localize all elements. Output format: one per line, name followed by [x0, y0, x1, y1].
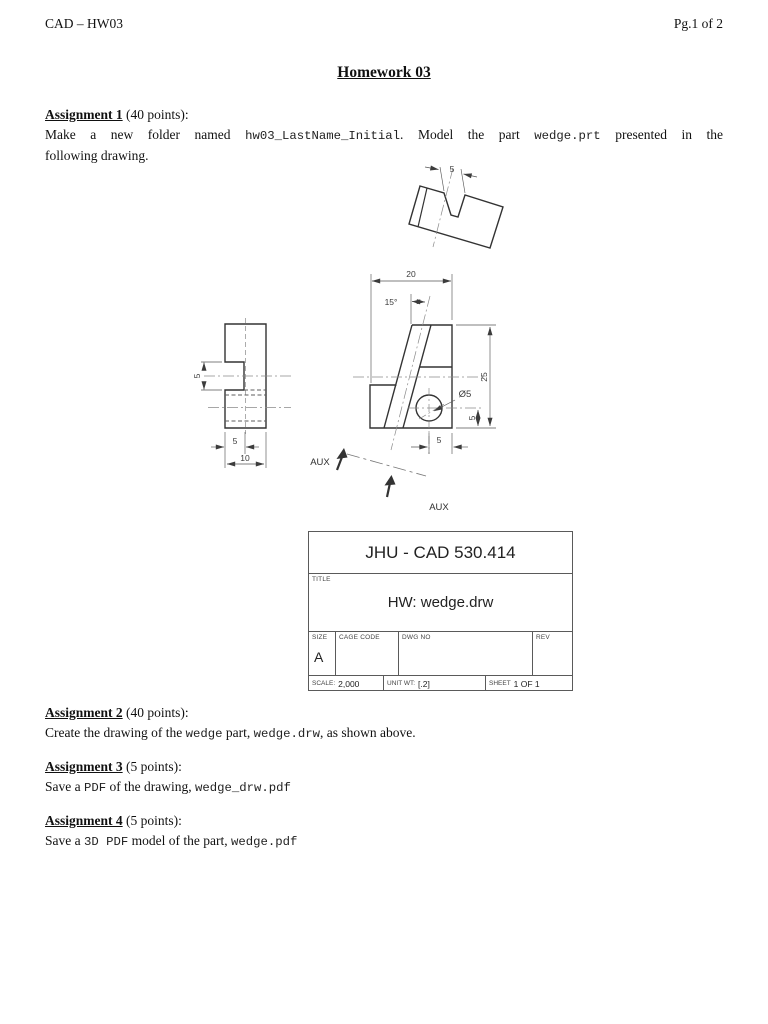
- assignment-1-body-line1: Make a new folder named hw03_LastName_In…: [45, 125, 723, 146]
- title-label: TITLE: [312, 576, 331, 583]
- scale-label: SCALE:: [312, 680, 335, 687]
- dwg-no-cell: DWG NO: [399, 632, 533, 675]
- dim-front-height: 25: [479, 372, 489, 382]
- aux-label-left: AUX: [310, 457, 330, 468]
- side-view-hidden-lines: [225, 390, 266, 421]
- scale-cell: SCALE: 2,000: [309, 676, 384, 691]
- hole-circle: [416, 395, 442, 421]
- header-course-code: CAD – HW03: [45, 16, 123, 32]
- assignment-1-body-line2: following drawing.: [45, 146, 723, 166]
- document-page: CAD – HW03 Pg.1 of 2 Homework 03 Assignm…: [0, 0, 768, 1024]
- size-label: SIZE: [312, 634, 327, 641]
- front-view: 20 15° 25 5 5 Ø5: [353, 269, 496, 454]
- code-folder-name: hw03_LastName_Initial: [245, 129, 400, 143]
- cage-code-label: CAGE CODE: [339, 634, 380, 641]
- aux-slot-centerline: [433, 168, 453, 247]
- scale-value: 2,000: [338, 679, 359, 689]
- header-page-number: Pg.1 of 2: [674, 16, 723, 32]
- rev-label: REV: [536, 634, 550, 641]
- code-part-name: wedge.prt: [534, 129, 600, 143]
- dim-side-depth: 10: [240, 453, 250, 463]
- title-block: JHU - CAD 530.414 TITLE HW: wedge.drw SI…: [308, 531, 573, 691]
- drawing-title: HW: wedge.drw: [309, 594, 572, 611]
- code-part: wedge: [186, 727, 223, 741]
- assignment-2: Assignment 2 (40 points): Create the dra…: [45, 703, 723, 744]
- assignment-4-heading: Assignment 4 (5 points):: [45, 811, 723, 831]
- code-pdf-file: wedge_drw.pdf: [195, 781, 291, 795]
- aux-arrow-left-shaft: [337, 457, 342, 470]
- front-view-outline: [370, 325, 452, 428]
- text-run: of the drawing,: [106, 779, 195, 794]
- aux-arrow-right-shaft: [387, 483, 390, 497]
- assignment-2-points: (40 points):: [123, 705, 189, 720]
- dwg-no-label: DWG NO: [402, 634, 431, 641]
- assignment-2-title: Assignment 2: [45, 705, 123, 720]
- sheet-label: SHEET: [489, 680, 511, 687]
- assignment-4-body: Save a 3D PDF model of the part, wedge.p…: [45, 831, 723, 852]
- front-view-dimension-lines: [371, 274, 496, 454]
- assignment-3-title: Assignment 3: [45, 759, 123, 774]
- code-drawing-file: wedge.drw: [254, 727, 320, 741]
- dim-side-notch-height: 5: [192, 373, 202, 378]
- dim-slot-angle: 15°: [385, 297, 398, 307]
- assignment-3: Assignment 3 (5 points): Save a PDF of t…: [45, 757, 723, 798]
- auxiliary-view: 5: [409, 164, 503, 248]
- side-view-dimension-lines: [201, 362, 266, 468]
- aux-viewing-plane: AUX AUX: [310, 448, 449, 513]
- assignment-4-title: Assignment 4: [45, 813, 123, 828]
- text-run: Create the drawing of the: [45, 725, 186, 740]
- size-value: A: [314, 649, 323, 665]
- size-cell: SIZE A: [309, 632, 336, 675]
- aux-arrow-left-head: [337, 448, 348, 459]
- front-view-centerlines: [353, 296, 484, 454]
- side-view-centerlines: [204, 318, 291, 434]
- sheet-value: 1 OF 1: [514, 679, 540, 689]
- text-run: presented in the: [601, 127, 723, 142]
- aux-arrow-right-head: [385, 475, 396, 486]
- sheet-cell: SHEET 1 OF 1: [486, 676, 572, 691]
- title-block-company: JHU - CAD 530.414: [309, 532, 572, 574]
- title-block-bottom-row: SCALE: 2,000 UNIT WT: [.2] SHEET 1 OF 1: [309, 676, 572, 691]
- assignment-3-heading: Assignment 3 (5 points):: [45, 757, 723, 777]
- title-block-fields-row: SIZE A CAGE CODE DWG NO REV: [309, 632, 572, 676]
- assignment-3-body: Save a PDF of the drawing, wedge_drw.pdf: [45, 777, 723, 798]
- assignment-2-heading: Assignment 2 (40 points):: [45, 703, 723, 723]
- dim-hole-from-right: 5: [437, 435, 442, 445]
- text-run: model of the part,: [128, 833, 231, 848]
- rev-cell: REV: [533, 632, 572, 675]
- code-model-pdf-file: wedge.pdf: [231, 835, 297, 849]
- assignment-2-body: Create the drawing of the wedge part, we…: [45, 723, 723, 744]
- dim-front-width: 20: [406, 269, 416, 279]
- code-pdf: PDF: [84, 781, 106, 795]
- side-view: 5 5 10: [192, 318, 291, 468]
- text-run: , as shown above.: [320, 725, 416, 740]
- assignment-1-title: Assignment 1: [45, 107, 123, 122]
- page-title-text: Homework 03: [337, 64, 430, 81]
- code-3d-pdf: 3D PDF: [84, 835, 128, 849]
- unit-wt-label: UNIT WT:: [387, 680, 415, 687]
- aux-dimension-lines: [425, 167, 477, 193]
- assignment-1: Assignment 1 (40 points): Make a new fol…: [45, 105, 723, 166]
- slot-centerline: [391, 296, 430, 450]
- page-title: Homework 03: [0, 64, 768, 82]
- title-block-title-row: TITLE HW: wedge.drw: [309, 574, 572, 632]
- text-run: . Model the part: [400, 127, 534, 142]
- assignment-1-heading: Assignment 1 (40 points):: [45, 105, 723, 125]
- dim-side-notch-depth: 5: [233, 436, 238, 446]
- dim-hole-from-bottom: 5: [467, 415, 477, 420]
- unit-wt-cell: UNIT WT: [.2]: [384, 676, 486, 691]
- assignment-4: Assignment 4 (5 points): Save a 3D PDF m…: [45, 811, 723, 852]
- assignment-3-points: (5 points):: [123, 759, 182, 774]
- assignment-4-points: (5 points):: [123, 813, 182, 828]
- cage-code-cell: CAGE CODE: [336, 632, 399, 675]
- text-run: Make a new folder named: [45, 127, 245, 142]
- viewing-plane-line: [347, 454, 426, 476]
- side-view-outline: [225, 324, 266, 428]
- unit-wt-value: [.2]: [418, 679, 430, 689]
- aux-label-right: AUX: [429, 502, 449, 513]
- text-run: Save a: [45, 779, 84, 794]
- aux-view-outline: [409, 186, 503, 248]
- assignment-1-points: (40 points):: [123, 107, 189, 122]
- aux-view-step-edge: [418, 188, 427, 227]
- text-run: part,: [222, 725, 253, 740]
- text-run: Save a: [45, 833, 84, 848]
- dim-hole-diameter: Ø5: [459, 389, 472, 400]
- hole-dia-leader: [434, 400, 455, 411]
